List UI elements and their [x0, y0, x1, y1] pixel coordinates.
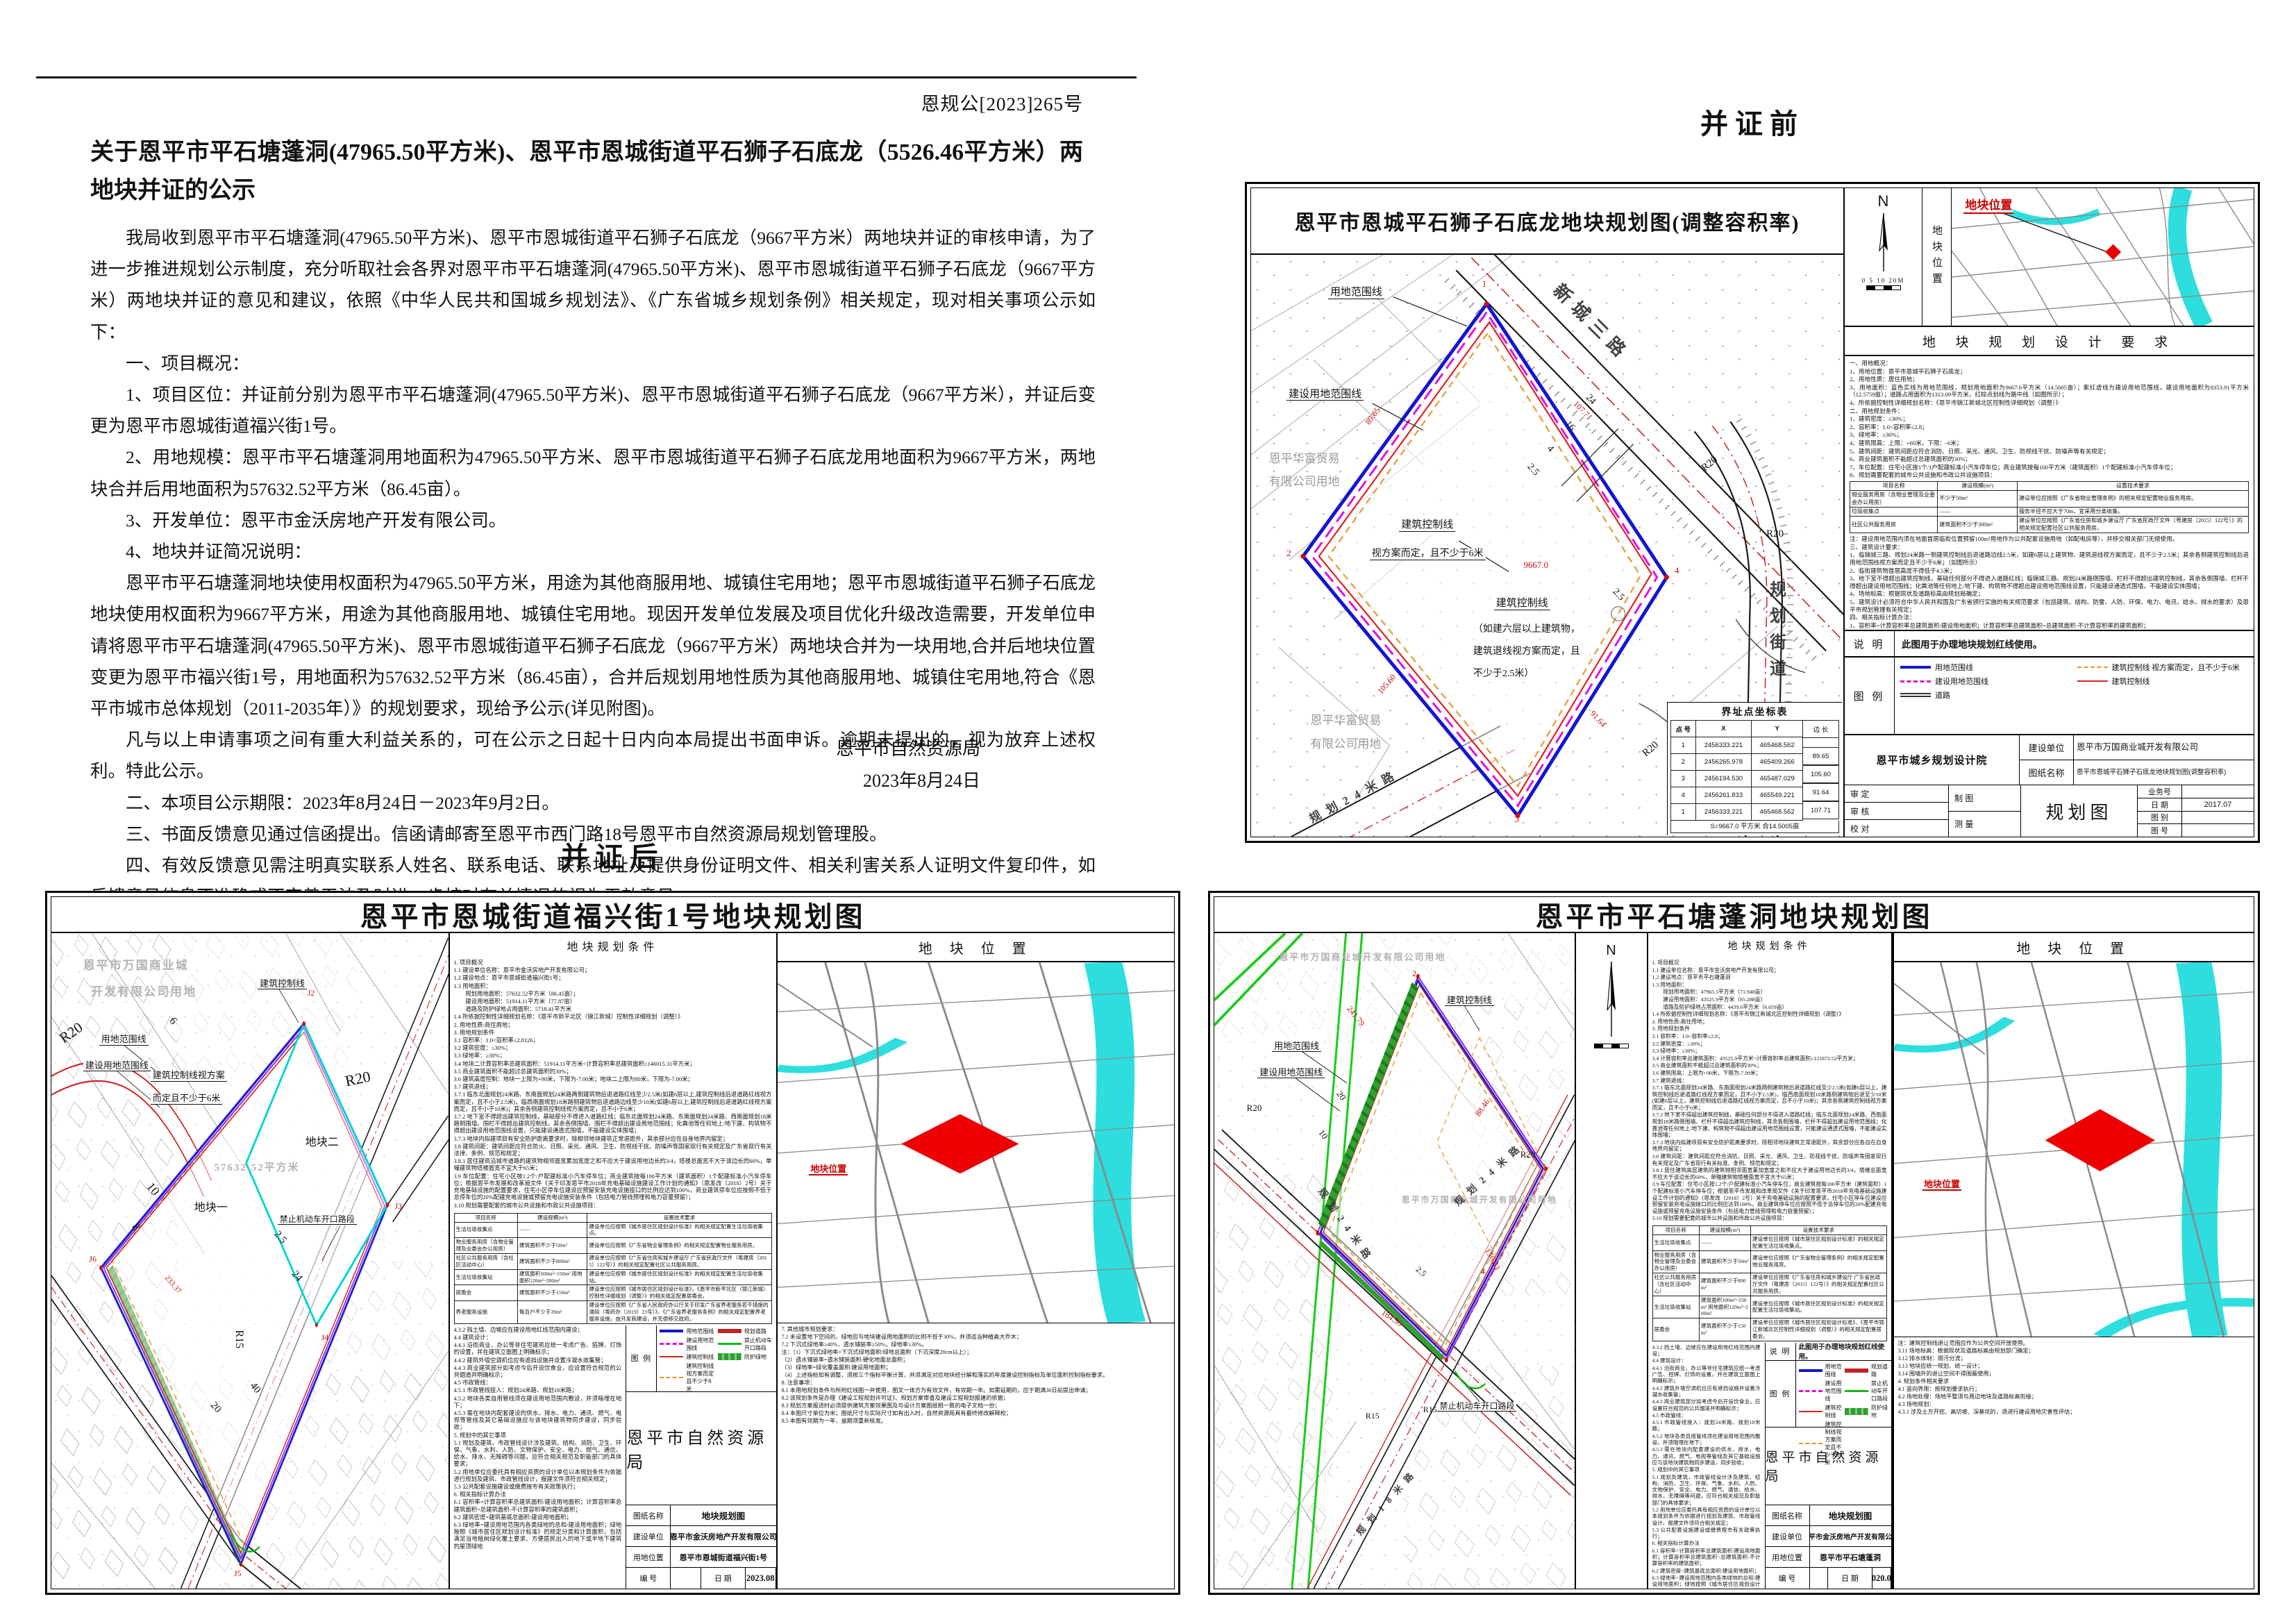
sheet-no-label: 图 号	[2138, 824, 2182, 837]
coord-cell: 465468.562	[1752, 737, 1803, 754]
map-label: 有限公司用地	[1310, 738, 1381, 751]
text-line: 道路及防护绿地占用面积：5718.41平方米	[454, 1006, 772, 1013]
table-cell: 生活垃圾收集站	[454, 1269, 517, 1285]
text-line: 8.1 本用地规划条件与所附红线图一并使用，图文一体方为有效文件，有效期一年。如…	[782, 1387, 1171, 1394]
coord-cell: 1	[1671, 804, 1696, 821]
north-label: N	[1878, 192, 1889, 210]
text-line: 6.3 绿地率=建设用地范围内各类绿地的总和/建设用地面积；绿地按照《城市居住区…	[454, 1522, 622, 1550]
map-label: 105.60	[1376, 672, 1398, 696]
map-label: R15	[1366, 1412, 1380, 1421]
review-grid: 审 定 审 核 校 对	[1845, 785, 1949, 837]
legend-item-label: 禁止机动车开口路段	[744, 1337, 773, 1352]
note-text: 此图用于办理地块规划红线使用。	[1796, 1343, 1891, 1360]
legend-swatch-green-fill	[718, 1353, 741, 1360]
legend-item-label: 规划道路	[1871, 1363, 1888, 1378]
legend-item: 建筑控制线视方案而定且不少于6米	[658, 1362, 717, 1393]
table-cell: 建筑面积不少于50m²	[1699, 1250, 1750, 1273]
conditions-column-pst: 地块规划条件 1. 项目概况1.1 建设单位名称：恩平市金沃房地产开发有限公司；…	[1648, 933, 1893, 1589]
north-arrow-icon	[1603, 959, 1620, 1042]
text-line: 4.5.2 地块各类自用管线须在建设用地范围内敷设，并须暗埋在地下；	[454, 1396, 622, 1409]
text-line: 4.5.1 市政管线接入：规划24米路、规划18米路；	[1652, 1419, 1761, 1432]
map-label: 89.65	[1364, 406, 1382, 426]
text-line: 4、场地标高：根据现状及道路标高由规划局确定；	[1850, 590, 2249, 598]
map-label: R20	[57, 1019, 86, 1046]
table-cell: 建筑面积100m²~150m² 用地面积120m²~200m²	[517, 1269, 587, 1285]
text-line: 3. 用地规划条件	[454, 1030, 772, 1037]
map-label: 建筑控制线	[1494, 598, 1550, 610]
text-line: 3.9 车位配置：住宅小区按1.2个/户配建标准小汽车停车位；商业建筑按每100…	[454, 1173, 772, 1202]
text-line: 7.2 下沉式绿地率≥40%，透水铺装率≥50%，绿地率≥30%。	[782, 1341, 1171, 1348]
table-cell: 服务半径不应大于70m，宜采用分类收集。	[2018, 508, 2249, 517]
map-label: 禁止机动车开口路段	[278, 1215, 357, 1225]
table-header: 设置技术要求	[2018, 481, 2249, 490]
table-cell: 建筑面积不少于800m²	[1699, 1273, 1750, 1296]
sheet-after: 恩平市恩城街道福兴街1号地块规划图	[45, 891, 1180, 1595]
text-line: 3.4 地块二计算容积率总建筑面积：51914.11平方米<计算容积率总建筑面积…	[454, 1061, 772, 1068]
text-line: 3.5 商业建筑面积不能超过总建筑面积的30%；	[1652, 1062, 1887, 1069]
table-cell: 建设单位应按照《广东省物业管理条例》的相关规定配置物业服务用房。	[1751, 1250, 1886, 1273]
owner-value: 恩平市金沃房地产开发有限公司	[1810, 1526, 1891, 1546]
plan-map-before: 恩平市恩城平石狮子石底龙地块规划图(调整容积率)	[1251, 188, 1845, 837]
text-line: 3. 用地规划条件	[1652, 1026, 1887, 1032]
table-cell: 垃圾收集点	[1850, 508, 1938, 517]
edge-header: 边 长	[1803, 720, 1839, 738]
map-label: 4	[1481, 1267, 1485, 1276]
text-line: 6.2 建筑密度=建筑基底总面积/建设用地面积；	[454, 1514, 622, 1521]
text-line: 4.4.1 沿街商业、办公等非住宅建筑应统一考虑广告、招牌、灯饰的设置，并在建筑…	[454, 1342, 622, 1356]
text-line: 注：建筑控制线退让范围应作为公共空间开放使用。	[1898, 1340, 2250, 1347]
text-line: 8.4 本图尺寸单位为米；图纸尺寸与实际尺寸如有出入时，自然资源局具有最终修改解…	[782, 1410, 1171, 1417]
map-label: R20	[1700, 454, 1720, 474]
map-label: R20	[1247, 1103, 1262, 1113]
coord-cell: 465468.562	[1752, 804, 1803, 821]
coord-cell: 2	[1671, 754, 1696, 771]
legend-item: 规划道路	[1843, 1362, 1890, 1379]
legend-after: 用地范围线规划道路建设用地范围线禁止机动车开口路段建筑控制线防护绿地建筑控制线视…	[657, 1325, 776, 1391]
conditions-header-pst: 地块规划条件	[1648, 933, 1891, 958]
legend-item-label: 建筑控制线 视方案而定，且不少于6米	[2112, 662, 2240, 673]
map-label: 规划24米路	[1316, 1187, 1376, 1266]
legend-swatch-red-solid	[2077, 680, 2108, 682]
conditions-notes-after: 1. 项目概况1.1 建设单位名称：恩平市金沃房地产开发有限公司；1.2 建设地…	[450, 958, 776, 1212]
table-header: 建设规模(m²)	[517, 1213, 587, 1222]
coord-table-title: 界址点坐标表	[1670, 705, 1839, 719]
text-line: 建设用地面积：51914.11平方米（77.87亩）	[454, 998, 772, 1005]
legend-item: 建筑控制线	[658, 1353, 717, 1362]
edge-length: 89.65	[1803, 747, 1839, 765]
map-label: 8	[129, 1221, 142, 1233]
sheet-pst-inner: 恩平市平石塘蓬洞地块规划图	[1214, 896, 2254, 1589]
text-line: 4.3.1 涉及土方开挖、高切坡、深基坑的，须进行建设用地灾害性评估；	[1898, 1409, 2250, 1416]
table-header: 建设规模(m²)	[1938, 481, 2018, 490]
text-line: 4. 规划条件相关要求	[1898, 1378, 2250, 1385]
owner-label: 建设单位	[626, 1526, 671, 1546]
owner-label: 建设单位	[1766, 1526, 1810, 1546]
map-label: 开发有限公司用地	[91, 986, 196, 999]
text-line: 2. 用地性质:商住用地；	[1652, 1019, 1887, 1026]
text-line: 3、绿地率：≥30%；	[1850, 431, 2249, 439]
edge-length: 105.60	[1803, 765, 1839, 783]
table-header: 项目名称	[1652, 1225, 1699, 1234]
map-label: 地块一	[194, 1202, 228, 1214]
text-line: 4.3.2 挡土墙、边坡应在建设用地红线范围内建设；	[1652, 1344, 1761, 1357]
text-line: 3.2 建筑密度：≤30%；	[454, 1045, 772, 1052]
text-line: 8.3 规划方案报送时必须提供建筑方案效果图及与设计方案图纸相一致的电子文档一份…	[782, 1403, 1171, 1409]
map-label: 建设用地范围线	[1287, 389, 1364, 401]
legend-swatch-magenta-dash	[1900, 680, 1931, 683]
map-label: 建设用地范围线	[1257, 1068, 1325, 1078]
number-grid: 业务号 日 期2017.07 图 别 图 号	[2137, 785, 2254, 837]
legend-item-label: 建筑控制线	[686, 1353, 714, 1361]
map-label: 建筑退线视方案而定，且	[1473, 646, 1580, 657]
date-value: 2020.08	[1872, 1568, 1891, 1589]
location-column-pst: 地 块 位 置	[1893, 933, 2254, 1589]
legend-item-label: 建设用地范围线	[1825, 1380, 1843, 1403]
text-line: 3.7.3 地块内拟建项目有安全防护距离要求时，除相邻地块建筑正常退距外，其余部…	[454, 1136, 772, 1143]
text-line: 二、用地规划条件：	[1850, 408, 2249, 415]
map-label: 不少于2.5米）	[1473, 669, 1534, 679]
map-label: 156.83	[1483, 1246, 1502, 1271]
text-line: 2、容积率：1.0<容积率≤2.8；	[1850, 424, 2249, 431]
text-line: 3、地下室不得超出建筑控制线，基础任何部分不得进入道路红线；临锦城三路、规划24…	[1850, 575, 2249, 589]
legend-item-label: 防护绿地	[1871, 1404, 1888, 1419]
map-label: 地块二	[305, 1137, 339, 1149]
map-label: 用地范围线	[1272, 1041, 1321, 1052]
coord-cell: 465487.029	[1752, 771, 1803, 787]
owner-value: 恩平市金沃房地产开发有限公司	[671, 1526, 776, 1546]
text-line: 3、用地面积：蓝色实线为用地范围线，规划用地面积为9667.0平方米（14.50…	[1850, 384, 2249, 399]
legend-label-pst: 图 例	[1766, 1361, 1796, 1427]
edge-length: 91.64	[1803, 783, 1839, 801]
draft-label: 制 图	[1949, 785, 2020, 811]
map-label: J4	[321, 1333, 329, 1342]
map-label: J5	[234, 1569, 242, 1578]
text-line: 1、用地位置：恩平市恩城平石狮子石底龙；	[1850, 368, 2249, 376]
text-line: 6.2 建筑密度=建筑基底总面积/建设用地面积；	[1652, 1568, 1761, 1574]
text-line: 3.7 建筑退线：	[1652, 1078, 1887, 1085]
legend-swatch-blue-solid	[1799, 1369, 1822, 1372]
biz-no-label: 业务号	[2138, 785, 2182, 798]
coord-cell: 2456194.530	[1695, 771, 1752, 787]
legend-item-label: 建设用地范围线	[1935, 676, 1988, 687]
text-line: 4.4.2 建筑外墙空调机位应有遮挡设施并设置冷凝水收集管；	[454, 1357, 622, 1364]
table-cell: 建设单位应按照《城市居住区规划设计标准》、《恩平市新平北区（锦江新城）控制性详细…	[587, 1285, 771, 1301]
text-line: （4）上述指标如有调整，须按三个指标平衡计算，并须满足对应地块经分解和落实的年度…	[782, 1372, 1171, 1379]
table-cell: 建设单位应按照《城市居住区规划设计标准》、《恩平市锦江新城北区控制性详细规划（调…	[1751, 1319, 1886, 1341]
text-line: 1、项目区位：并证前分别为恩平市平石塘蓬洞(47965.50平方米)、恩平市恩城…	[90, 379, 1096, 442]
table-cell: ——	[517, 1222, 587, 1238]
legend-item-label: 用地范围线	[1935, 662, 1973, 673]
location-value: 恩平市平石塘蓬洞	[1810, 1547, 1891, 1567]
text-line: 1.1 建设单位名称：恩平市金沃房地产开发有限公司；	[1652, 967, 1887, 974]
map-labels-pst: 恩平市万国商业城开发有限公司用地恩平市万国商业城开发有限公司用地用地范围线建设用…	[1214, 933, 1575, 1589]
notice-sign-date: 2023年8月24日	[42, 767, 1062, 792]
text-line: 1.3 用地面积：	[454, 983, 772, 990]
coord-cell: 3	[1671, 771, 1696, 787]
text-line: 4.4.3 商业建筑部分如考虑今后开设饮食业，应设置符合规范的公共烟道并明确标示…	[1652, 1398, 1761, 1412]
serial-label: 编 号	[1766, 1568, 1810, 1589]
table-cell: ——	[1938, 508, 2018, 517]
text-line: 3.2 建筑密度：≤30%；	[1652, 1041, 1887, 1048]
text-line: 4.4.3 商业建筑部分如考虑今后开设饮食业，应设置符合规范的公共烟道并明确标示…	[454, 1365, 622, 1379]
map-label: 建设用地范围线	[83, 1061, 151, 1071]
text-line: 4.4 建筑设计：	[1652, 1357, 1761, 1364]
design-institute: 恩平市城乡规划设计院	[1845, 735, 2020, 785]
text-line: 1.4 所依据控制性详细规划名称：《恩平市新平北区（锦江新城）控制性详细规划（调…	[454, 1014, 772, 1021]
map-label: R20	[1641, 739, 1661, 760]
legend-item-label: 用地范围线	[1825, 1363, 1843, 1378]
requirements-notes-2: 注：建设用地范围内须在地面首层临街位置预留100m²用地作为公共配套设施用地（如…	[1850, 535, 2249, 630]
text-line: 4.5.1 市政管线接入：规划24米路、规划18米路；	[454, 1387, 622, 1394]
map-label: 4	[1675, 566, 1679, 576]
text-line: 注：建设用地范围内须在地面首层临街位置预留100m²用地作为公共配套设施用地（如…	[1850, 535, 2249, 543]
conditions-notes2-after: 4.3.2 挡土墙、边坡应在建设用地红线范围内建设；4.4 建筑设计：4.4.1…	[450, 1325, 626, 1589]
inset-map-after	[778, 962, 1175, 1323]
text-line: 3.7 建筑退线；	[454, 1084, 772, 1091]
text-line: 4、所依据控制性详细规划名称：《恩平市锦江新城北区控制性详细规划（调整）》	[1850, 399, 2249, 407]
table-cell: 建设单位应按照《城市居住区规划设计标准》的相关规定配置生活垃圾收集站。	[1751, 1296, 1886, 1319]
legend-item: 防护绿地	[717, 1353, 775, 1362]
text-line: 1、临锦城三路、规划24米路一侧建筑控制线后退道路边线2.5米，如建6层以上建筑…	[1850, 551, 2249, 566]
legend-swatch-red-road	[1845, 1368, 1868, 1373]
legend-label-after: 图 例	[626, 1325, 657, 1391]
extra-notes-pst: 注：建筑控制线退让范围应作为公共空间开放使用。3.11 场地标高：根据现状及道路…	[1894, 1337, 2254, 1589]
edge-length: 107.71	[1803, 801, 1839, 819]
table-cell: 建设单位应按照《广东省物业管理条例》的相关规定配置物业服务用房。	[587, 1238, 771, 1254]
map-label: 91.64	[1589, 709, 1608, 729]
boundary-coordinate-table: 界址点坐标表点 号XY12456333.221465468.5622245626…	[1667, 702, 1842, 835]
text-line: 4.3.2 挡土墙、边坡应在建设用地红线范围内建设；	[454, 1327, 622, 1334]
drawing-name-value: 恩平市恩城平石狮子石底龙地块规划图(调整容积率)	[2074, 760, 2254, 785]
text-line: 5.2 用地单位应委托具有相应资质的设计单位以本规划条件为依据进行规划及建筑、市…	[454, 1469, 622, 1483]
legend-swatch-orange-dash	[660, 1377, 683, 1378]
legend-swatch-green-solid	[718, 1343, 741, 1345]
text-line: 3.1 容积率：1.0<容积率≤2.8126；	[454, 1037, 772, 1044]
legend-item: 用地范围线	[658, 1327, 717, 1336]
facility-table-after: 项目名称建设规模(m²)设置技术要求生活垃圾收集点——建设单位应按照《城市居住区…	[450, 1212, 776, 1325]
text-line: 5、建筑设计必须符合中华人民共和国及广东省颁行实施的有关规范要求（包括建筑、结构…	[1850, 598, 2249, 613]
extra-notes-after: 7. 其他城市规划要求：7.1 未设置地下空间的，绿地应与地块建设用地面积的比例…	[778, 1323, 1175, 1589]
table-cell: 建筑面积不少于150m²	[1699, 1319, 1750, 1341]
table-header: 设置技术要求	[587, 1213, 771, 1222]
bureau-name-after: 恩平市自然资源局	[626, 1392, 776, 1505]
drawing-type: 规划图	[2021, 785, 2137, 837]
sheet-no-value	[2182, 824, 2254, 837]
text-line: 6.1 容积率=计算容积率总建筑面积/建设用地面积；计算容积率总建筑面积=总建筑…	[1652, 1548, 1761, 1567]
text-line: 恩平市平石塘蓬洞地块使用权面积为47965.50平方米，用途为其他商服用地、城镇…	[90, 567, 1096, 724]
section-label-after: 并证后	[45, 835, 1180, 875]
map-label: 2.5	[1611, 587, 1627, 603]
map-label: 恩平市万国商业城开发有限公司用地	[1279, 953, 1446, 962]
map-label: 88.46	[1474, 1098, 1492, 1119]
map-label: 4	[1544, 444, 1555, 455]
map-label: 6	[167, 1015, 180, 1027]
table-header: 项目名称	[454, 1213, 517, 1222]
legend-item: 禁止机动车开口路段	[717, 1336, 775, 1353]
map-label: J2	[308, 989, 315, 998]
legend-item: 道路	[1897, 688, 2075, 702]
text-line: 规划用地面积：57632.52平方米（86.45亩）；	[454, 991, 772, 998]
text-line: 3.8.1 居住建筑沿城市道路的建筑物相邻面宽累加宽度之和不应大于建设用地边长的…	[454, 1158, 772, 1172]
text-line: 5.3 公共配套设施建设或缴费按市有关政策执行；	[1652, 1527, 1761, 1540]
category-value	[2182, 812, 2254, 824]
map-label: R15	[233, 1330, 246, 1348]
legend-swatch-blue-solid	[1900, 666, 1931, 669]
coord-table-footer: S=9667.0 平方米 合14.5005亩	[1670, 821, 1839, 833]
map-label: 16	[1563, 419, 1577, 433]
map-label: 241.79	[1345, 1005, 1366, 1028]
note-text: 此图用于办理地块规划红线使用。	[1895, 631, 2043, 656]
category-label: 图 别	[2138, 812, 2182, 824]
approve-label: 审 定	[1845, 785, 1948, 803]
map-label: （如建六层以上建筑物，	[1473, 624, 1580, 635]
scale-bar-icon	[1866, 285, 1901, 290]
compass-before: N 0 5 10 20M	[1845, 188, 1922, 326]
check-label: 审 核	[1845, 803, 1948, 820]
text-line: （2）透水铺装率=透水铺装面积/硬化地面总面积；	[782, 1357, 1171, 1364]
section-label-before: 并证前	[1245, 101, 2260, 142]
map-label: 10	[144, 1180, 162, 1198]
note-label: 说 明	[1766, 1343, 1796, 1360]
table-cell: 建筑面积不少于150m²	[517, 1285, 587, 1301]
text-line: 2、用地性质：居住用地；	[1850, 376, 2249, 383]
table-cell: ——	[1699, 1234, 1750, 1250]
map-label: 禁止机动车开口路段	[1437, 1402, 1516, 1412]
location-header-after: 地 块 位 置	[778, 933, 1175, 962]
text-line: 3.14 围墙外的退让空间不得围蔽使用；	[1898, 1371, 2250, 1378]
drawing-name-label: 图纸名称	[2020, 760, 2074, 785]
text-line: 三、建筑设计要求：	[1850, 544, 2249, 551]
map-canvas-before: 用地范围线建设用地范围线恩平华富贸易有限公司用地恩平华富贸易有限公司用地建筑控制…	[1251, 255, 1843, 837]
legend-item: 防护绿地	[1843, 1403, 1890, 1420]
map-label: 184.56	[1380, 1308, 1404, 1328]
legend-swatch-red-road	[718, 1329, 741, 1333]
text-line: 1.4 所依据控制性详细规划名称：《恩平市锦江新城北区控制性详细规划（调整）》	[1652, 1011, 1887, 1018]
text-line: 8、规划需要配套的城市公共设施和市政公共设施项目：	[1850, 471, 2249, 479]
legend-item: 建设用地范围线	[658, 1336, 717, 1353]
text-line: 3.6 建筑高度控制：地块一上限为+90米，下限为-7.00米；地块二上限为80…	[454, 1076, 772, 1083]
map-label: 233.37	[163, 1274, 183, 1296]
legend-swatch-green-solid	[1845, 1390, 1868, 1392]
text-line: 3.7.1 临东北面规划24米路、东南面规划24米路两侧建筑物后退道路红线至少2…	[1652, 1085, 1887, 1111]
legend-item: 用地范围线	[1798, 1362, 1844, 1379]
title-block-before: 恩平市城乡规划设计院 建设单位 恩平市万国商业城开发有限公司 图纸名称 恩平市恩…	[1845, 734, 2254, 837]
table-cell: 建筑面积100m²~150m² 用地面积120m²~200m²	[1699, 1296, 1750, 1319]
biz-no-value	[2182, 785, 2254, 798]
map-label: 恩平华富贸易	[1310, 714, 1381, 728]
date-value: 2023.08	[746, 1568, 776, 1589]
text-line: 3.10 规划需要配套的城市公共设施和市政公共设施项目：	[1652, 1215, 1887, 1222]
text-line: 四、相关指标计算办法：	[1850, 614, 2249, 621]
text-line: 3、开发单位：恩平市金沃房地产开发有限公司。	[90, 505, 1096, 536]
sheet-title-pst: 恩平市平石塘蓬洞地块规划图	[1214, 897, 2254, 933]
text-line: 1、建筑密度：≤30%；	[1850, 415, 2249, 423]
map-label: 恩平市万国商业城	[83, 960, 189, 973]
legend-label: 图 例	[1845, 658, 1895, 734]
date-label: 日 期	[1828, 1568, 1872, 1589]
text-line: 4、地块并证简况说明：	[90, 536, 1096, 567]
text-line: 4.5.3 需在地块内配套建设的供水、排水、电力、通讯、燃气、电视等管线及其它基…	[454, 1410, 622, 1432]
text-line: 5.3 公共配套设施建设或缴费按市有关政策执行；	[454, 1484, 622, 1491]
sheet-before-inner: 恩平市恩城平石狮子石底龙地块规划图(调整容积率)	[1250, 187, 2254, 837]
map-label: 2.5	[271, 1228, 289, 1246]
legend-swatch-red-solid	[1799, 1411, 1822, 1412]
table-cell: 居委会	[1652, 1319, 1699, 1341]
text-line: 2、用地规模：恩平市平石塘蓬洞用地面积为47965.50平方米、恩平市恩城街道平…	[90, 442, 1096, 504]
text-line: 3.7.3 地块内拟建项目有安全防护距离要求时，除相邻地块建筑正常退距外，其余部…	[1652, 1139, 1887, 1153]
table-cell: 建设单位应按照《广东省住房和城乡建设厅 广东省民政厅文件（粤建房（2015）12…	[1751, 1273, 1886, 1296]
text-line: 5.2 用地单位应委托具有相应资质的设计单位以本规划条件为依据进行规划及建筑、市…	[1652, 1507, 1761, 1526]
table-cell: 每百户不少于20m²	[517, 1301, 587, 1324]
conditions-header-after: 地块规划条件	[450, 933, 776, 958]
data-table: 项目名称建设规模(m²)设置技术要求生活垃圾收集点——建设单位应按照《城市居住区…	[454, 1213, 772, 1324]
map-label: 1	[1482, 279, 1487, 289]
coord-cell: 2456265.978	[1695, 754, 1752, 771]
map-label: J6	[89, 1255, 97, 1264]
map-label: 用地范围线	[99, 1035, 149, 1045]
map-label: R20	[344, 1069, 372, 1090]
text-line: 我局收到恩平市平石塘蓬洞(47965.50平方米)、恩平市恩城街道平石狮子石底龙…	[90, 222, 1096, 348]
coord-cell: 2456333.221	[1695, 737, 1752, 754]
text-line: 1.3 用地面积：	[1652, 982, 1887, 989]
coord-header: X	[1695, 721, 1752, 737]
text-line: 3.5 商业建筑面积不能超过总建筑面积的30%；	[454, 1069, 772, 1075]
table-cell: 生活垃圾收集点	[454, 1222, 517, 1238]
map-label: 24	[1584, 392, 1598, 407]
legend-item: 建筑控制线	[1798, 1403, 1844, 1420]
location-header-pst: 地 块 位 置	[1894, 933, 2254, 962]
table-cell: 物业服务用房（含物业管理及业委会办公用房）	[454, 1238, 517, 1254]
map-label: 规划18米路	[1355, 1466, 1420, 1537]
sheet-before: 恩平市恩城平石狮子石底龙地块规划图(调整容积率)	[1245, 182, 2260, 843]
coord-cell: 2456261.833	[1695, 787, 1752, 804]
legend-item-label: 道路	[1935, 689, 1950, 701]
coord-cell: 465409.266	[1752, 754, 1803, 771]
location-label: 用地位置	[626, 1547, 671, 1567]
proof-label: 校 对	[1845, 820, 1948, 837]
sheet-pst: 恩平市平石塘蓬洞地块规划图	[1208, 891, 2260, 1595]
text-line: 5.1 规划及建筑、市政管线设计涉及建筑、结构、消防、卫生、环保、气象、水利、人…	[1652, 1474, 1761, 1506]
map-label: 建筑控制线视方案	[151, 1071, 227, 1081]
text-line: 一、用地概况：	[1850, 360, 2249, 367]
map-title-before: 恩平市恩城平石狮子石底龙地块规划图(调整容积率)	[1251, 188, 1843, 255]
text-line: 4.2 场地处理：场地平整须与周边地块及道路标高衔接；	[1898, 1393, 2250, 1400]
table-cell: 社区公共服务用房	[1850, 517, 1938, 533]
location-label: 用地位置	[1766, 1547, 1810, 1567]
legend-item-label: 禁止机动车开口路段	[1871, 1380, 1888, 1403]
coord-cell: 1	[1671, 737, 1696, 754]
text-line: 一、项目概况：	[90, 348, 1096, 379]
coord-header: 点 号	[1671, 721, 1696, 737]
text-line: 3.12 排水体制：雨污分流；	[1898, 1355, 2250, 1362]
owner-value: 恩平市万国商业城开发有限公司	[2074, 735, 2254, 760]
legend-item: 建筑控制线	[2075, 674, 2252, 688]
text-line: 4.4 建筑设计：	[454, 1334, 622, 1341]
text-line: 7、车位配置：住宅小区按1个/1户配建标准小汽车停车位；商业建筑按每100平方米…	[1850, 464, 2249, 471]
title-block-pst: 说 明 此图用于办理地块规划红线使用。 图 例 用地范围线规划道路建设用地范围线…	[1765, 1343, 1891, 1589]
text-line: 4.5 市政管线：	[1652, 1412, 1761, 1418]
legend-item: 建设用地范围线	[1897, 674, 2075, 688]
map-label: 20	[1334, 1089, 1348, 1102]
map-label: 恩平华富贸易	[1269, 453, 1340, 466]
map-label: 建筑控制线	[258, 979, 307, 989]
table-cell: 建设单位应按照《城市居住区规划设计标准》的相关规定配置生活垃圾收集点。	[1751, 1234, 1886, 1250]
text-line: 3.8.1 居住建筑高层建筑的建筑物相邻面宽累加宽度之和不应大于建设用地边长的3…	[1652, 1167, 1887, 1180]
text-line: 3.9 车位配置：住宅小区按1.2个/户配建标准小汽车停车位；商业建筑按每100…	[1652, 1181, 1887, 1214]
table-cell: 不少于50m²	[1938, 491, 2018, 508]
north-label: N	[1606, 943, 1616, 959]
text-line: 2、临街建筑物首层高度不得低于4.5米；	[1850, 567, 2249, 575]
